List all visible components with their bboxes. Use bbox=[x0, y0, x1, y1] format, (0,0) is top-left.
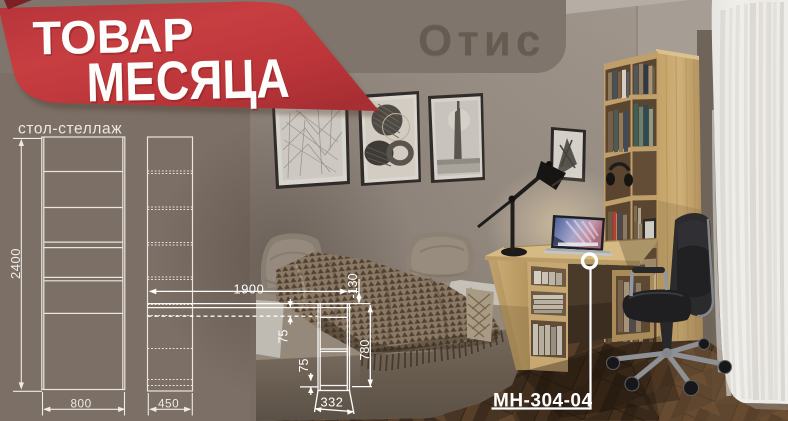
svg-text:Отис: Отис bbox=[418, 16, 545, 65]
svg-text:2400: 2400 bbox=[8, 248, 23, 279]
svg-text:1900: 1900 bbox=[234, 282, 265, 297]
svg-text:-130: -130 bbox=[346, 273, 360, 298]
svg-text:450: 450 bbox=[158, 396, 179, 410]
svg-text:75: 75 bbox=[277, 330, 291, 344]
svg-text:МЕСЯЦА: МЕСЯЦА bbox=[86, 47, 290, 114]
svg-text:332: 332 bbox=[321, 395, 344, 410]
svg-text:МН-304-04: МН-304-04 bbox=[493, 391, 593, 412]
svg-text:75: 75 bbox=[297, 359, 311, 373]
svg-text:780: 780 bbox=[358, 340, 372, 361]
svg-text:800: 800 bbox=[71, 396, 92, 410]
svg-text:стол-стеллаж: стол-стеллаж bbox=[18, 121, 122, 138]
